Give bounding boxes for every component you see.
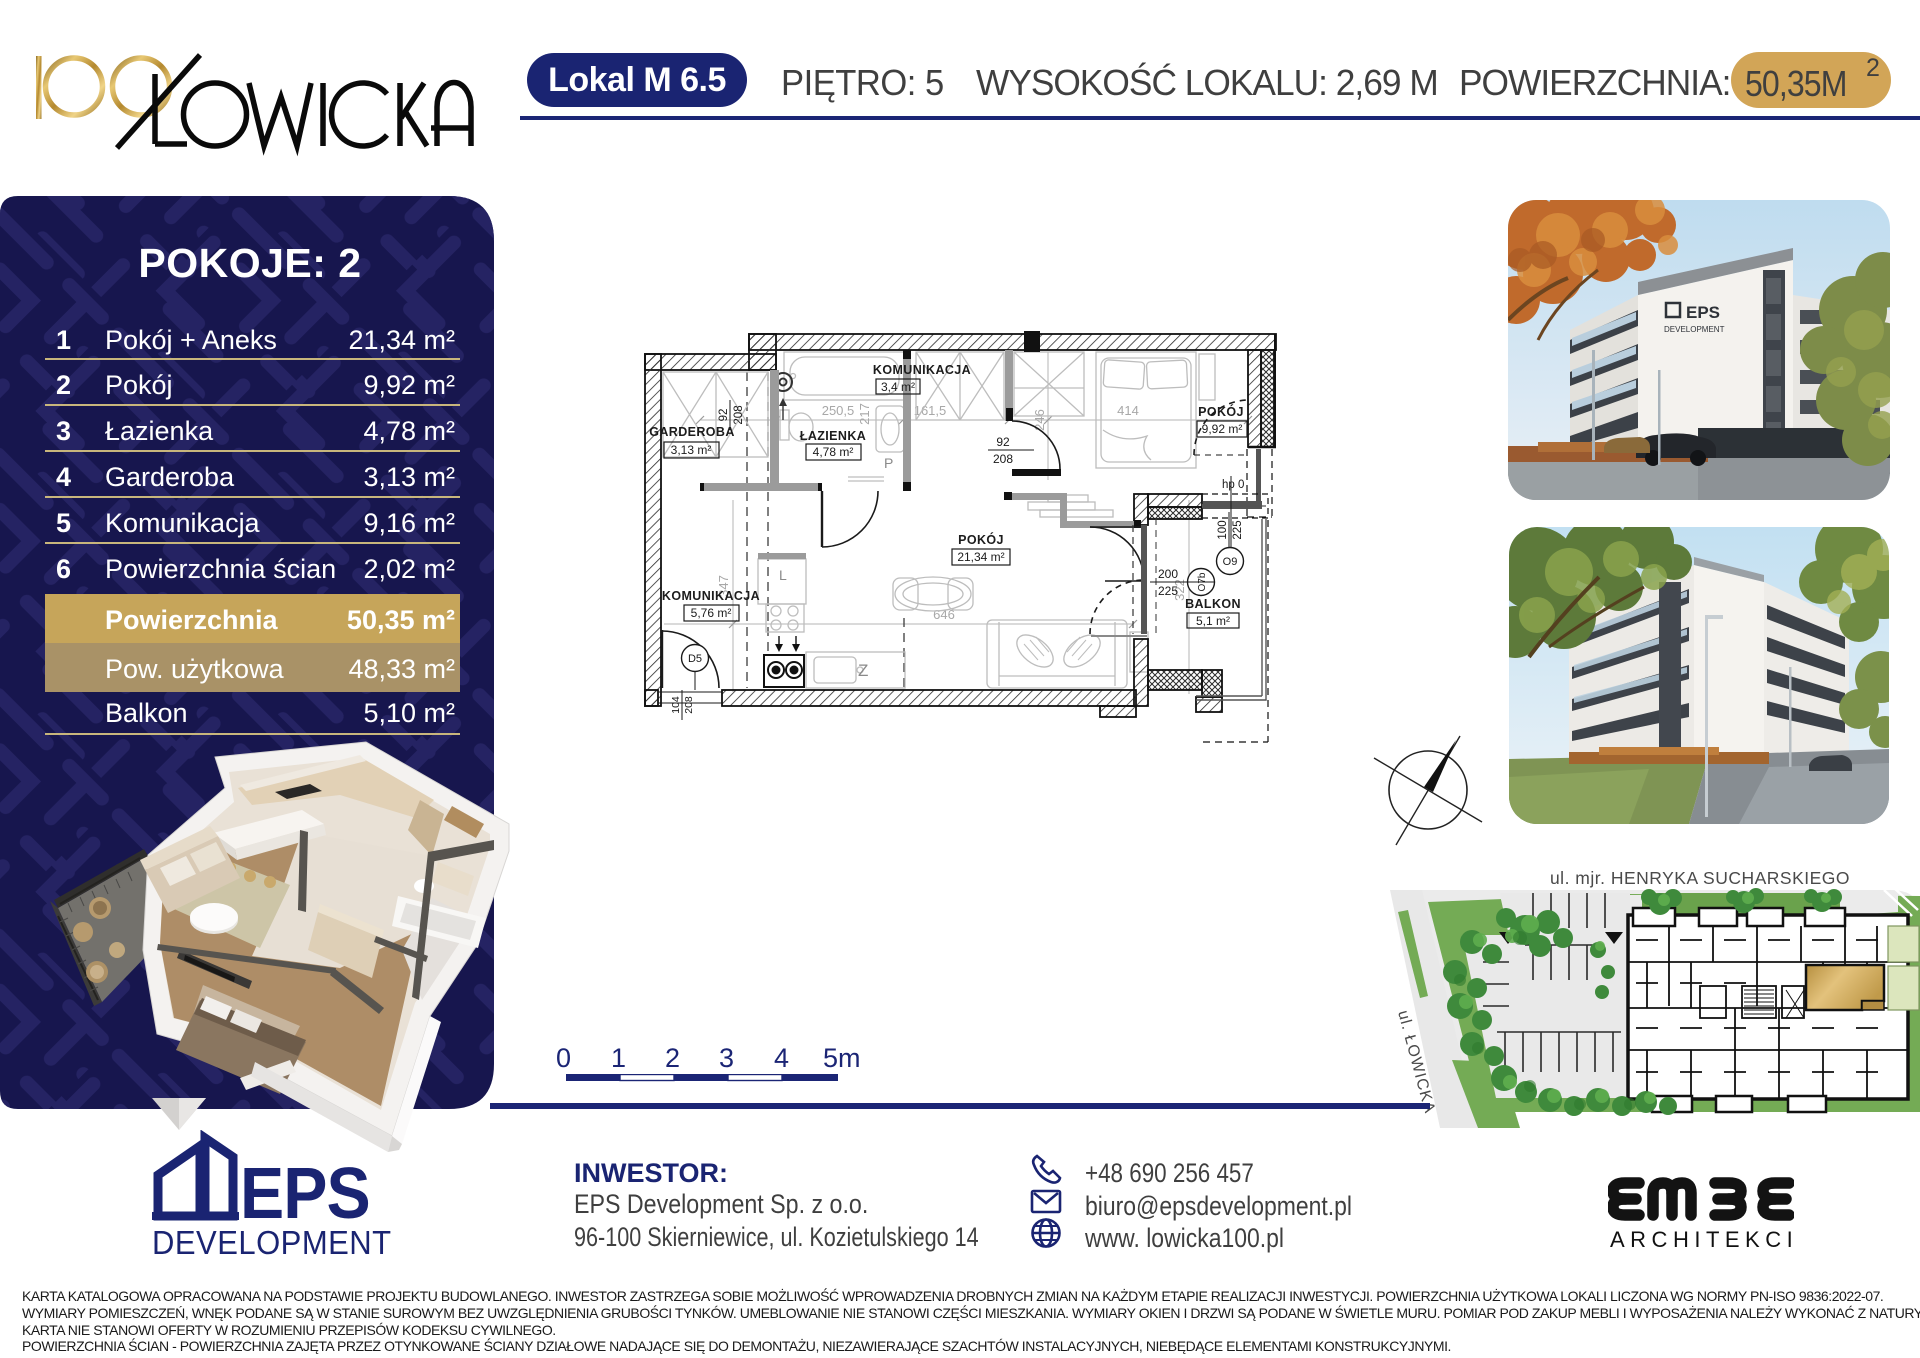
svg-text:250,5: 250,5 xyxy=(822,403,855,418)
svg-text:92: 92 xyxy=(996,435,1010,449)
svg-text:O9: O9 xyxy=(1223,556,1238,568)
svg-text:208: 208 xyxy=(993,452,1013,466)
svg-text:ul. mjr. HENRYKA SUCHARSKIEGO: ul. mjr. HENRYKA SUCHARSKIEGO xyxy=(1550,868,1850,888)
svg-text:D5: D5 xyxy=(688,653,702,665)
svg-text:225: 225 xyxy=(1232,520,1244,539)
svg-text:200: 200 xyxy=(1158,567,1178,581)
svg-text:KOMUNIKACJA: KOMUNIKACJA xyxy=(873,363,971,377)
svg-text:4,78 m²: 4,78 m² xyxy=(813,445,854,459)
svg-text:Z: Z xyxy=(858,661,868,680)
svg-text:21,34 m²: 21,34 m² xyxy=(957,550,1004,564)
svg-text:100: 100 xyxy=(1217,520,1229,539)
svg-text:ŁAZIENKA: ŁAZIENKA xyxy=(800,429,866,443)
svg-text:5,1 m²: 5,1 m² xyxy=(1196,614,1230,628)
svg-text:POKÓJ: POKÓJ xyxy=(1198,404,1244,419)
svg-text:5,76 m²: 5,76 m² xyxy=(691,606,732,620)
svg-text:BALKON: BALKON xyxy=(1185,597,1241,611)
svg-text:L: L xyxy=(779,567,787,583)
svg-text:217: 217 xyxy=(857,403,872,425)
svg-text:9,92 m²: 9,92 m² xyxy=(1202,422,1243,436)
svg-text:414: 414 xyxy=(1117,403,1139,418)
svg-text:92: 92 xyxy=(718,409,730,422)
svg-text:104: 104 xyxy=(670,696,682,714)
svg-text:DEVELOPMENT: DEVELOPMENT xyxy=(1664,325,1725,334)
svg-text:246: 246 xyxy=(1032,409,1047,431)
svg-text:KOMUNIKACJA: KOMUNIKACJA xyxy=(662,589,760,603)
svg-text:POKÓJ: POKÓJ xyxy=(958,532,1004,547)
svg-text:208: 208 xyxy=(733,405,745,424)
svg-text:225: 225 xyxy=(1158,584,1178,598)
svg-text:208: 208 xyxy=(683,696,695,714)
svg-text:3,13 m²: 3,13 m² xyxy=(671,443,712,457)
svg-text:P: P xyxy=(884,455,893,471)
svg-text:hp 0: hp 0 xyxy=(1222,479,1244,491)
svg-text:GARDEROBA: GARDEROBA xyxy=(649,425,735,439)
svg-text:EPS: EPS xyxy=(1686,303,1720,322)
svg-text:3,4 m²: 3,4 m² xyxy=(881,380,915,394)
